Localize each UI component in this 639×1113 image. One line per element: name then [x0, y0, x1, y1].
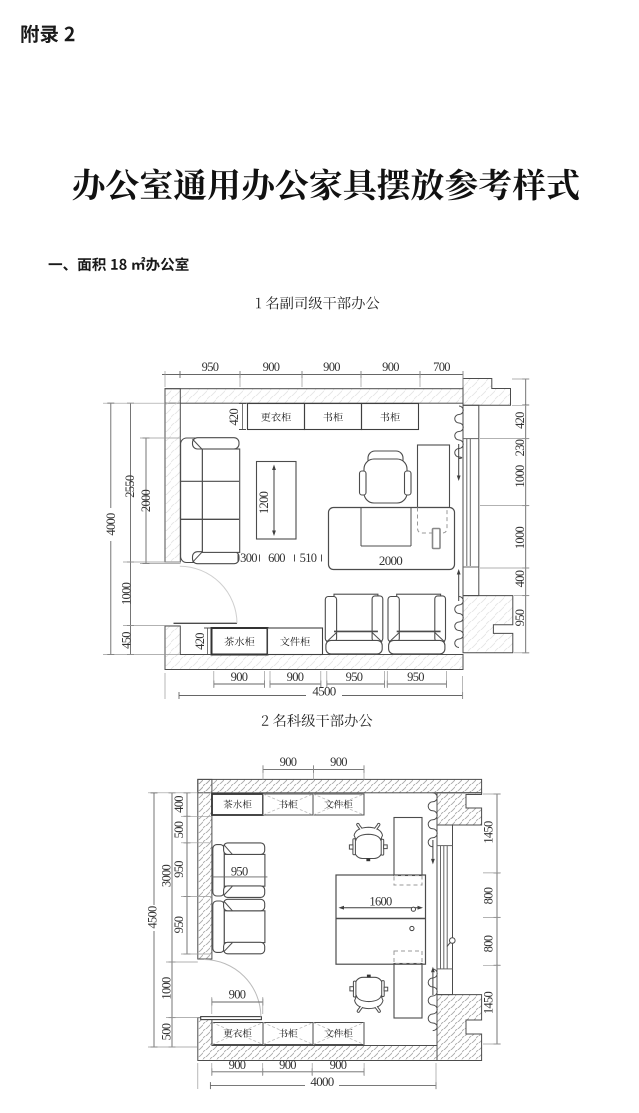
- svg-text:1000: 1000: [159, 977, 173, 1000]
- svg-text:1000: 1000: [513, 526, 527, 549]
- svg-text:4500: 4500: [145, 906, 159, 929]
- svg-text:900: 900: [330, 755, 347, 769]
- svg-text:950: 950: [231, 865, 248, 879]
- svg-text:4000: 4000: [104, 513, 118, 536]
- svg-text:900: 900: [330, 1058, 347, 1072]
- svg-text:950: 950: [202, 360, 219, 374]
- svg-text:900: 900: [287, 670, 304, 684]
- svg-text:4500: 4500: [312, 684, 335, 699]
- svg-text:950: 950: [513, 609, 527, 626]
- svg-text:700: 700: [433, 360, 450, 374]
- svg-text:950: 950: [172, 861, 186, 878]
- svg-text:1450: 1450: [482, 821, 496, 844]
- svg-text:900: 900: [323, 360, 340, 374]
- svg-text:900: 900: [229, 988, 246, 1002]
- svg-text:420: 420: [513, 412, 527, 429]
- svg-text:510: 510: [300, 551, 317, 565]
- svg-text:400: 400: [172, 796, 186, 813]
- svg-text:900: 900: [279, 1058, 296, 1072]
- svg-text:500: 500: [172, 821, 186, 838]
- svg-text:1000: 1000: [513, 465, 527, 488]
- svg-text:950: 950: [172, 916, 186, 933]
- svg-text:500: 500: [159, 1023, 173, 1040]
- svg-text:420: 420: [193, 633, 207, 650]
- svg-text:420: 420: [227, 409, 241, 426]
- svg-text:600: 600: [268, 551, 285, 565]
- svg-text:1000: 1000: [120, 582, 134, 605]
- svg-text:800: 800: [482, 935, 496, 952]
- svg-text:900: 900: [231, 670, 248, 684]
- svg-text:450: 450: [120, 632, 134, 649]
- svg-text:950: 950: [346, 670, 363, 684]
- svg-text:800: 800: [482, 887, 496, 904]
- svg-text:300: 300: [240, 551, 257, 565]
- svg-text:230: 230: [513, 439, 527, 456]
- svg-text:900: 900: [280, 755, 297, 769]
- svg-text:900: 900: [263, 360, 280, 374]
- svg-text:2000: 2000: [139, 489, 153, 512]
- svg-text:400: 400: [513, 570, 527, 587]
- svg-text:950: 950: [407, 670, 424, 684]
- svg-text:900: 900: [382, 360, 399, 374]
- svg-text:2550: 2550: [123, 475, 137, 498]
- svg-text:1200: 1200: [257, 491, 271, 514]
- svg-text:900: 900: [229, 1058, 246, 1072]
- svg-text:1450: 1450: [482, 991, 496, 1014]
- svg-text:1600: 1600: [369, 894, 392, 908]
- svg-text:4000: 4000: [310, 1074, 333, 1089]
- svg-text:3000: 3000: [159, 864, 173, 887]
- svg-text:2000: 2000: [379, 553, 402, 568]
